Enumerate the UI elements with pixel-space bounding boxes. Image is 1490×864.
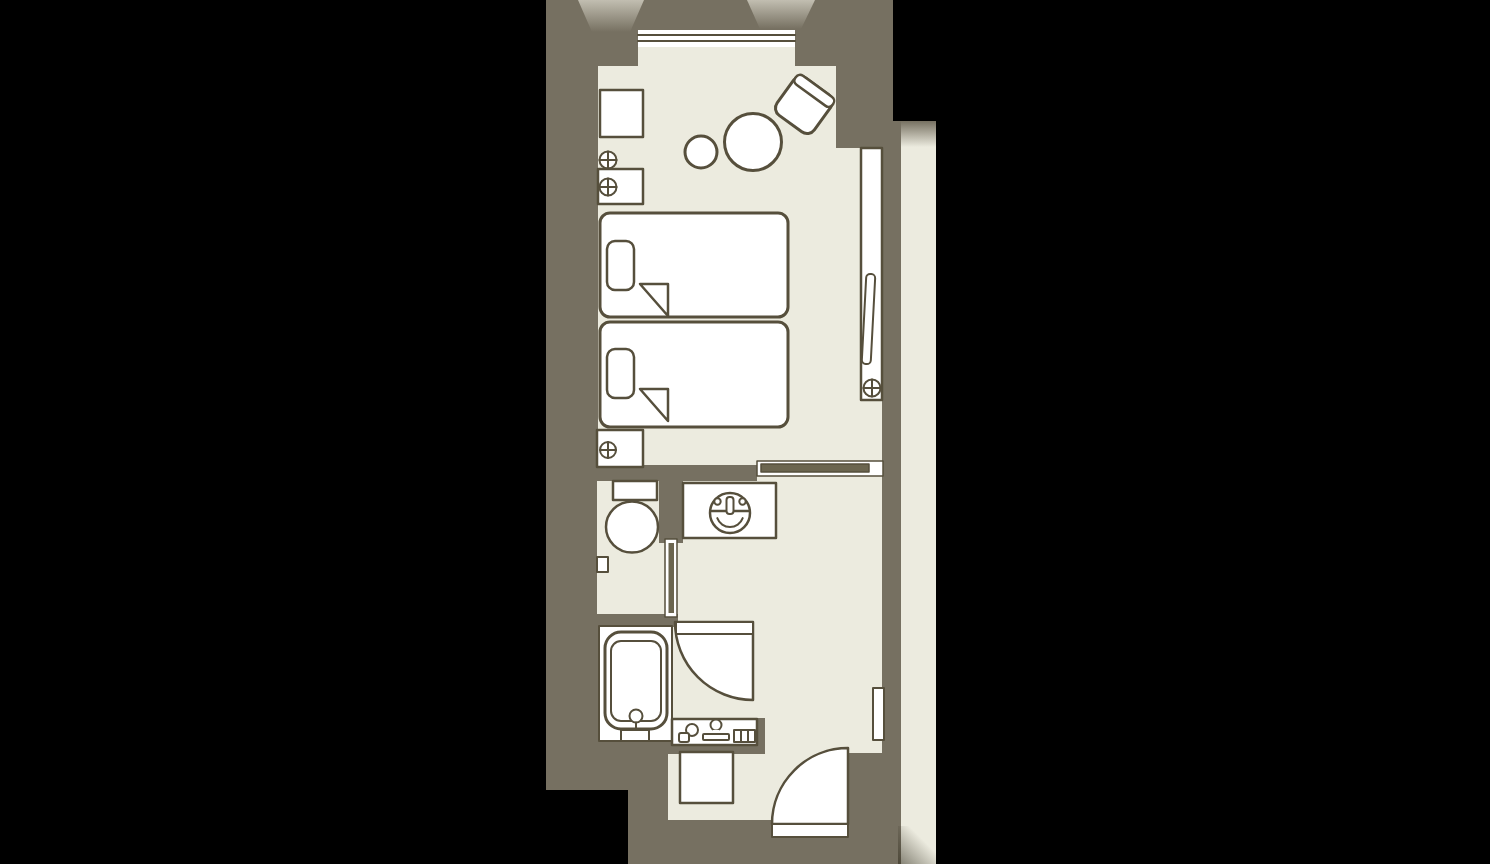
round-table — [725, 114, 782, 171]
right-light-strip — [898, 121, 936, 864]
entrance-door-leaf — [772, 824, 848, 837]
amenity-icon-rack — [734, 730, 755, 742]
bath-room — [599, 626, 672, 741]
washbasin-icon — [710, 493, 750, 533]
shoe-cabinet — [680, 752, 733, 803]
bed-2-pillow — [607, 349, 634, 398]
washbasin-counter — [683, 483, 776, 538]
toilet-bowl — [606, 502, 658, 553]
black-notch-bottom-left — [546, 790, 628, 864]
wall-toilet-basin — [659, 480, 683, 543]
window-frame — [638, 30, 795, 47]
right-light-strip-fill — [901, 121, 936, 864]
wall-plate — [873, 688, 884, 740]
vanity-shelf — [672, 719, 757, 745]
toilet-door-panel — [669, 543, 675, 613]
sliding-partition — [757, 461, 883, 476]
twin-bed-1 — [600, 213, 788, 317]
faucet-icon — [727, 497, 734, 514]
round-stool — [685, 136, 717, 168]
bed-1-pillow — [607, 241, 634, 290]
twin-bed-2 — [600, 322, 788, 427]
right-light-strip-shadow — [898, 826, 936, 864]
sliding-partition-panel — [761, 464, 869, 472]
window — [638, 30, 795, 47]
bathroom-door-leaf — [676, 622, 753, 634]
toilet-paper-holder — [597, 557, 608, 572]
right-light-strip-fade — [901, 121, 936, 147]
floor-plan-drawing — [0, 0, 1490, 864]
floor-window-bay — [638, 47, 795, 68]
bathtub-drain — [630, 710, 643, 723]
lamp-icon-nightstand-top — [600, 179, 617, 196]
bathtub-step — [621, 730, 649, 741]
handle-icon-right — [739, 498, 745, 504]
wall-bedroom-bath — [560, 465, 757, 481]
toilet-door — [665, 539, 677, 617]
lamp-icon-nightstand-bottom — [600, 442, 616, 458]
floor-lamp-icon — [600, 152, 617, 169]
tv-console — [861, 148, 882, 400]
handle-icon-left — [714, 498, 720, 504]
toilet — [606, 481, 658, 553]
desk-cabinet — [600, 90, 643, 137]
black-area-top-right — [893, 0, 1490, 121]
lamp-icon-console — [864, 380, 881, 397]
floor-plan-stage — [0, 0, 1490, 864]
wall-entry-hinge — [847, 753, 883, 831]
toilet-tank — [613, 481, 657, 500]
